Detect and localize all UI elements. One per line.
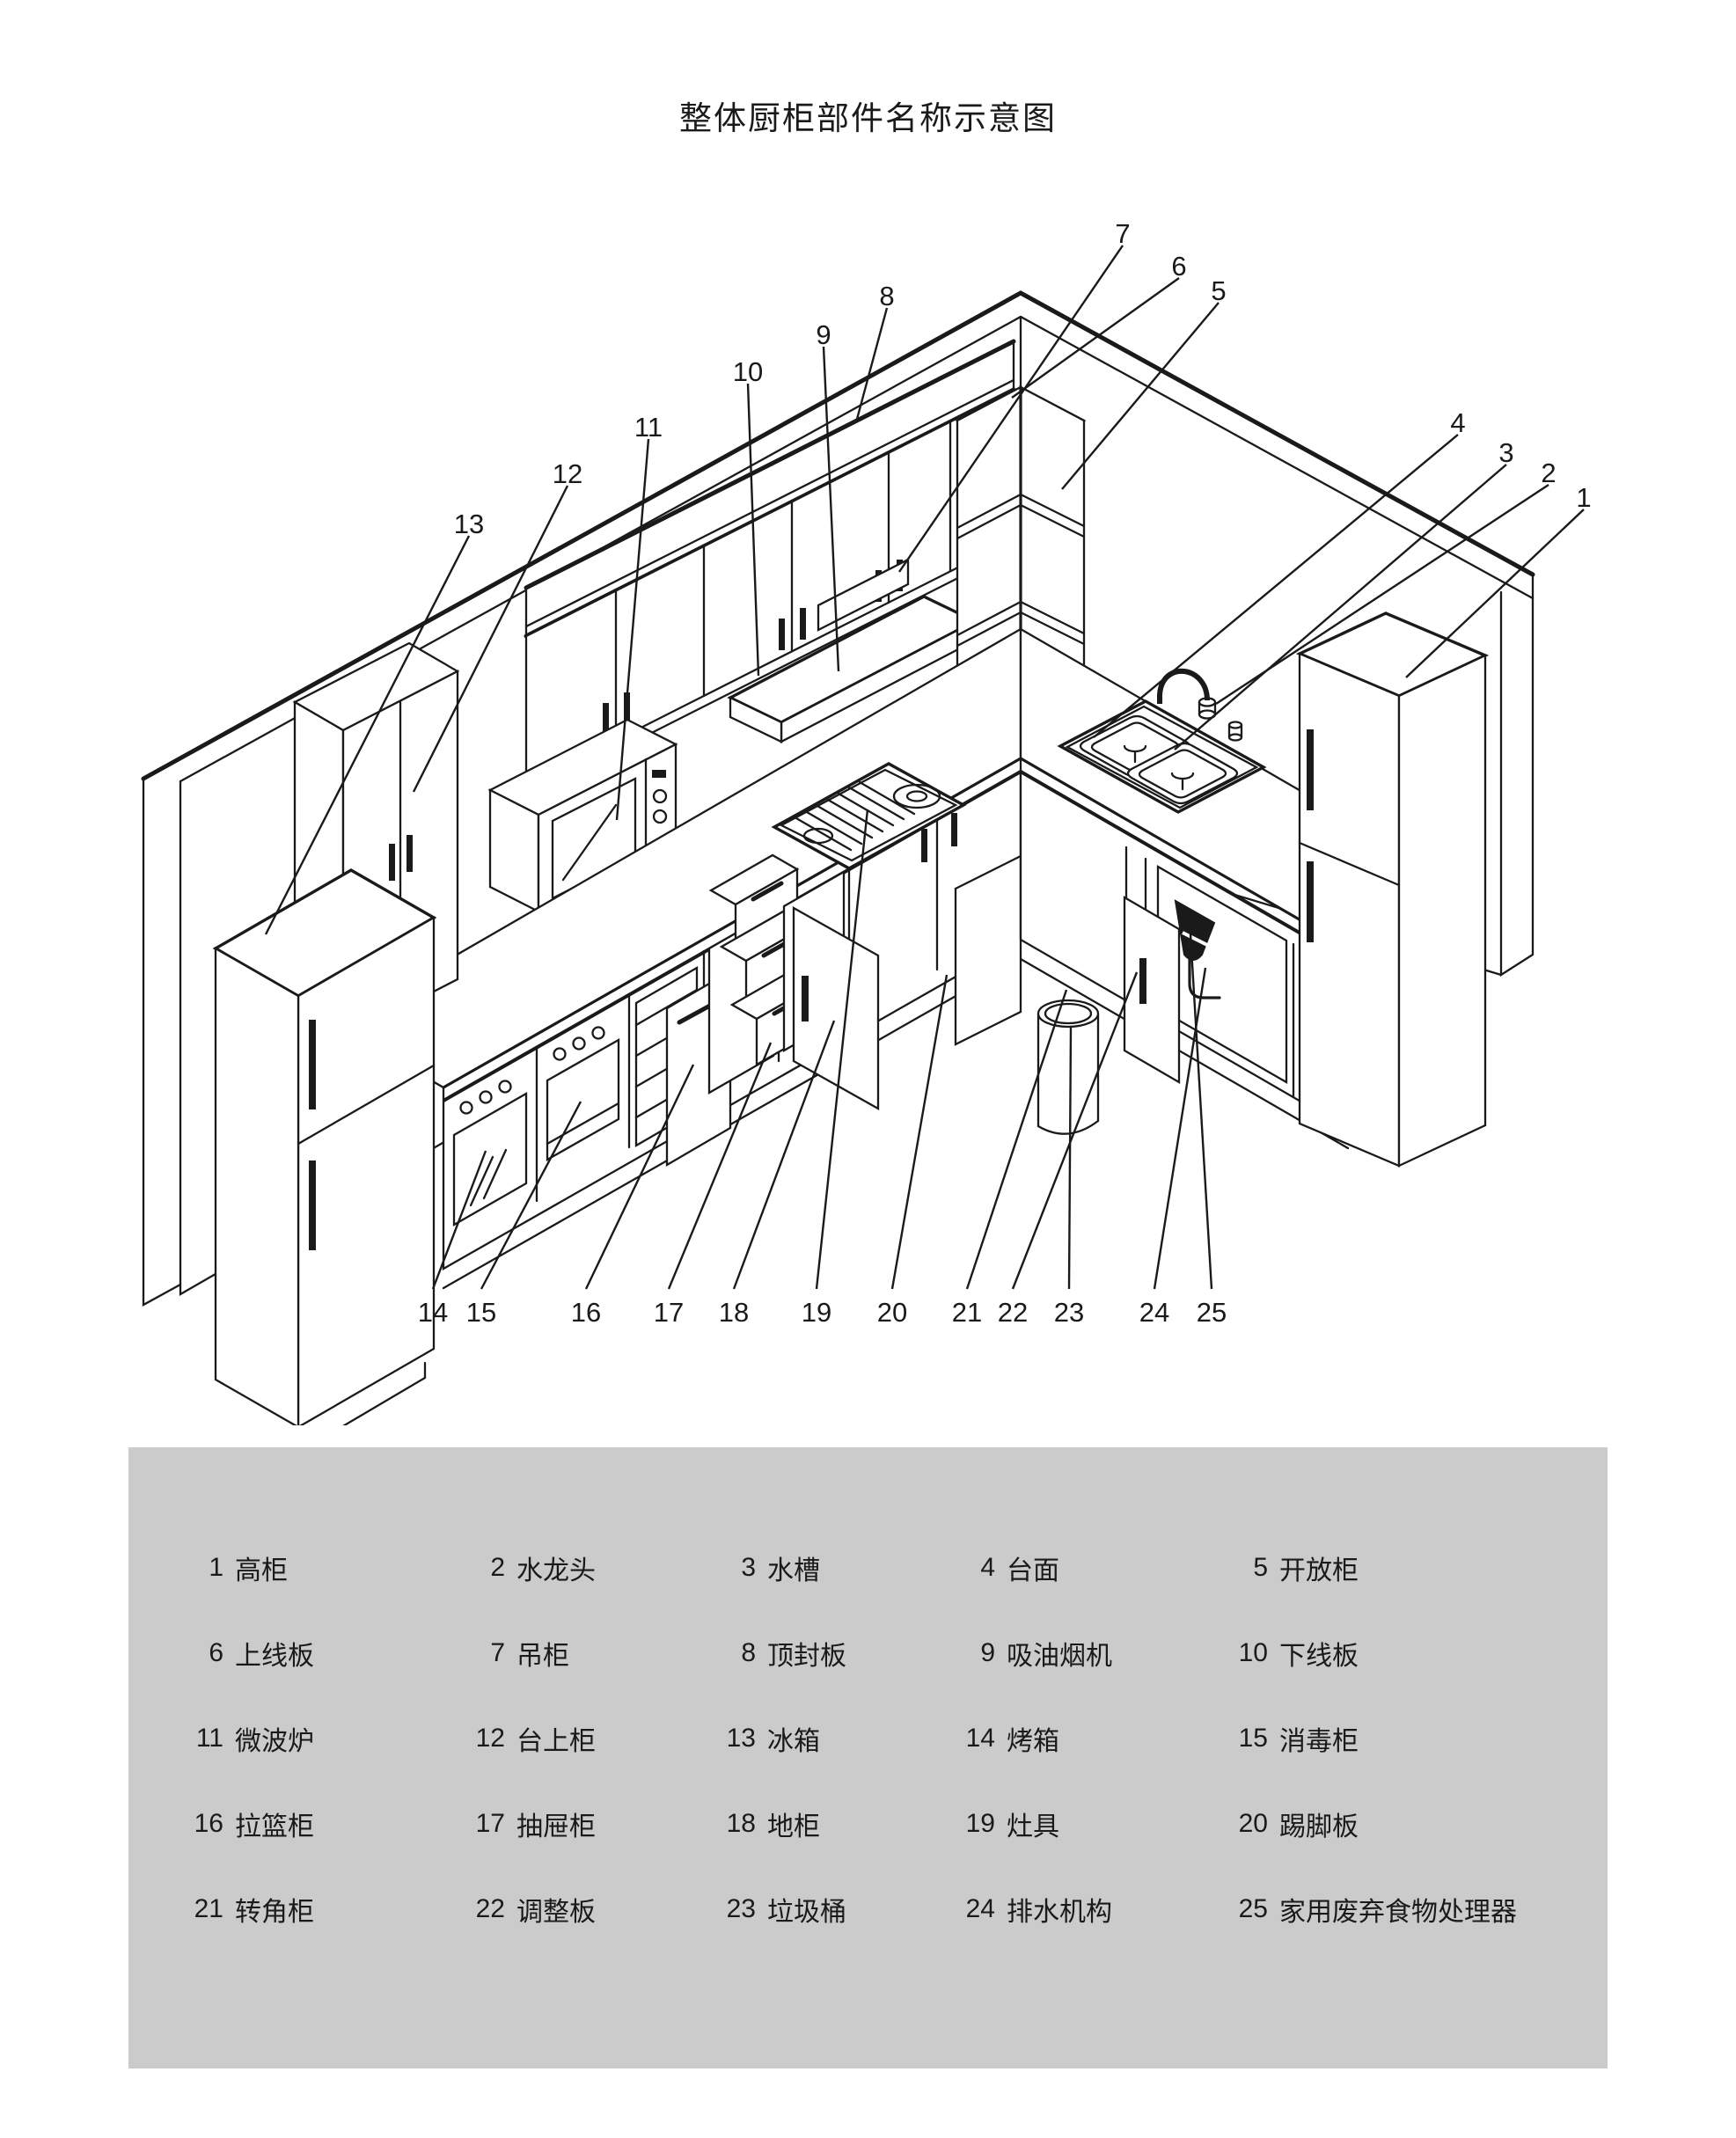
legend-item-label: 顶封板 xyxy=(767,1634,846,1673)
legend-item: 6 上线板 xyxy=(183,1610,465,1695)
legend-item-number: 22 xyxy=(465,1894,505,1924)
legend-item-number: 24 xyxy=(955,1894,995,1924)
callout-number: 16 xyxy=(571,1297,601,1328)
callout-number: 24 xyxy=(1139,1297,1169,1328)
legend-item-label: 开放柜 xyxy=(1279,1549,1359,1587)
legend-item-label: 消毒柜 xyxy=(1279,1719,1359,1758)
legend-item-number: 14 xyxy=(955,1724,995,1754)
legend-item-number: 6 xyxy=(183,1638,223,1668)
callout-number: 15 xyxy=(466,1297,496,1328)
callout-number: 12 xyxy=(553,458,582,489)
legend-item-label: 垃圾桶 xyxy=(767,1890,846,1929)
callout-number: 3 xyxy=(1498,437,1513,468)
legend-item-label: 上线板 xyxy=(235,1634,314,1673)
legend-item: 5 开放柜 xyxy=(1227,1525,1590,1610)
legend-item: 19 灶具 xyxy=(955,1781,1227,1866)
callout-number: 11 xyxy=(634,412,663,443)
legend-item: 14 烤箱 xyxy=(955,1695,1227,1781)
legend-item-label: 踢脚板 xyxy=(1279,1805,1359,1843)
legend-item-number: 4 xyxy=(955,1553,995,1583)
callout-number: 4 xyxy=(1450,407,1465,438)
callout-number: 8 xyxy=(879,281,894,311)
callout-number: 2 xyxy=(1541,458,1556,488)
legend-item-number: 5 xyxy=(1227,1553,1268,1583)
legend-item: 23 垃圾桶 xyxy=(715,1866,955,1951)
legend-item-number: 11 xyxy=(183,1724,223,1754)
legend-item: 17 抽屉柜 xyxy=(465,1781,715,1866)
callout-number: 25 xyxy=(1197,1297,1227,1328)
corner-cabinet-left-door xyxy=(956,856,1021,1044)
callout-number: 14 xyxy=(418,1297,448,1328)
legend-item-label: 烤箱 xyxy=(1007,1719,1059,1758)
legend-item-number: 23 xyxy=(715,1894,756,1924)
callout-number: 19 xyxy=(802,1297,831,1328)
legend-item-number: 25 xyxy=(1227,1894,1268,1924)
legend-item: 18 地柜 xyxy=(715,1781,955,1866)
legend-item: 1 高柜 xyxy=(183,1525,465,1610)
legend-item: 22 调整板 xyxy=(465,1866,715,1951)
legend-item: 9 吸油烟机 xyxy=(955,1610,1227,1695)
legend-item-number: 12 xyxy=(465,1724,505,1754)
legend-item-label: 灶具 xyxy=(1007,1805,1059,1843)
callout-number: 17 xyxy=(654,1297,684,1328)
legend-item-number: 10 xyxy=(1227,1638,1268,1668)
legend-item-label: 拉篮柜 xyxy=(235,1805,314,1843)
legend-item-number: 1 xyxy=(183,1553,223,1583)
legend-item-number: 13 xyxy=(715,1724,756,1754)
corner-cabinet-door xyxy=(1124,897,1179,1082)
legend-item-number: 7 xyxy=(465,1638,505,1668)
callout-number: 5 xyxy=(1211,275,1226,306)
legend-item: 24 排水机构 xyxy=(955,1866,1227,1951)
legend-item: 25 家用废弃食物处理器 xyxy=(1227,1866,1590,1951)
callout-number: 23 xyxy=(1054,1297,1084,1328)
legend-item-label: 排水机构 xyxy=(1007,1890,1112,1929)
callout-leader-line xyxy=(1406,509,1584,677)
legend-item-label: 微波炉 xyxy=(235,1719,314,1758)
fridge xyxy=(216,870,434,1425)
legend-item-label: 下线板 xyxy=(1279,1634,1359,1673)
legend-item-number: 17 xyxy=(465,1809,505,1839)
legend-item: 4 台面 xyxy=(955,1525,1227,1610)
kitchen-isometric-diagram: 1234567891011121314151617181920212223242… xyxy=(0,0,1736,1425)
legend-item: 16 拉篮柜 xyxy=(183,1781,465,1866)
legend-item-label: 吸油烟机 xyxy=(1007,1634,1112,1673)
legend-item-label: 抽屉柜 xyxy=(516,1805,596,1843)
legend-item-number: 2 xyxy=(465,1553,505,1583)
callout-number: 20 xyxy=(877,1297,907,1328)
legend-item-number: 19 xyxy=(955,1809,995,1839)
callout-leader-line xyxy=(892,975,947,1289)
callout-leader-line xyxy=(856,308,887,422)
legend-item: 2 水龙头 xyxy=(465,1525,715,1610)
trash-bin xyxy=(1038,1000,1098,1134)
legend-item-number: 16 xyxy=(183,1809,223,1839)
callout-number: 1 xyxy=(1576,482,1591,513)
legend-item-number: 21 xyxy=(183,1894,223,1924)
legend-item-label: 调整板 xyxy=(516,1890,596,1929)
page: 整体厨柜部件名称示意图 xyxy=(0,0,1736,2138)
legend-item: 7 吊柜 xyxy=(465,1610,715,1695)
legend-item: 21 转角柜 xyxy=(183,1866,465,1951)
legend-item: 20 踢脚板 xyxy=(1227,1781,1590,1866)
legend-item-number: 3 xyxy=(715,1553,756,1583)
legend-item-label: 台面 xyxy=(1007,1549,1059,1587)
callout-leader-line xyxy=(967,990,1066,1289)
legend-item: 11 微波炉 xyxy=(183,1695,465,1781)
tall-cabinet xyxy=(1300,613,1485,1166)
legend-item-number: 9 xyxy=(955,1638,995,1668)
legend-item-label: 冰箱 xyxy=(767,1719,820,1758)
legend-item-label: 家用废弃食物处理器 xyxy=(1279,1890,1517,1929)
legend-item: 8 顶封板 xyxy=(715,1610,955,1695)
legend-item-label: 水槽 xyxy=(767,1549,820,1587)
legend-item-label: 地柜 xyxy=(767,1805,820,1843)
legend-item: 3 水槽 xyxy=(715,1525,955,1610)
callout-number: 9 xyxy=(816,319,831,350)
callout-number: 13 xyxy=(454,509,484,539)
legend-item-label: 转角柜 xyxy=(235,1890,314,1929)
legend-item-number: 8 xyxy=(715,1638,756,1668)
legend-item-number: 20 xyxy=(1227,1809,1268,1839)
callout-number: 10 xyxy=(733,356,763,387)
legend-item-label: 高柜 xyxy=(235,1549,288,1587)
legend-item-number: 15 xyxy=(1227,1724,1268,1754)
legend-item: 13 冰箱 xyxy=(715,1695,955,1781)
callout-number: 6 xyxy=(1171,251,1186,282)
legend-item: 10 下线板 xyxy=(1227,1610,1590,1695)
callout-number: 18 xyxy=(719,1297,749,1328)
callout-number: 21 xyxy=(952,1297,982,1328)
callout-number: 7 xyxy=(1115,218,1130,249)
legend-item-label: 水龙头 xyxy=(516,1549,596,1587)
callout-number: 22 xyxy=(998,1297,1028,1328)
legend-item-label: 台上柜 xyxy=(516,1719,596,1758)
legend-item-label: 吊柜 xyxy=(516,1634,569,1673)
legend-item-number: 18 xyxy=(715,1809,756,1839)
legend-item: 12 台上柜 xyxy=(465,1695,715,1781)
legend-panel: 1 高柜 2 水龙头 3 水槽 4 台面 5 开放柜 xyxy=(128,1447,1608,2068)
legend-item: 15 消毒柜 xyxy=(1227,1695,1590,1781)
